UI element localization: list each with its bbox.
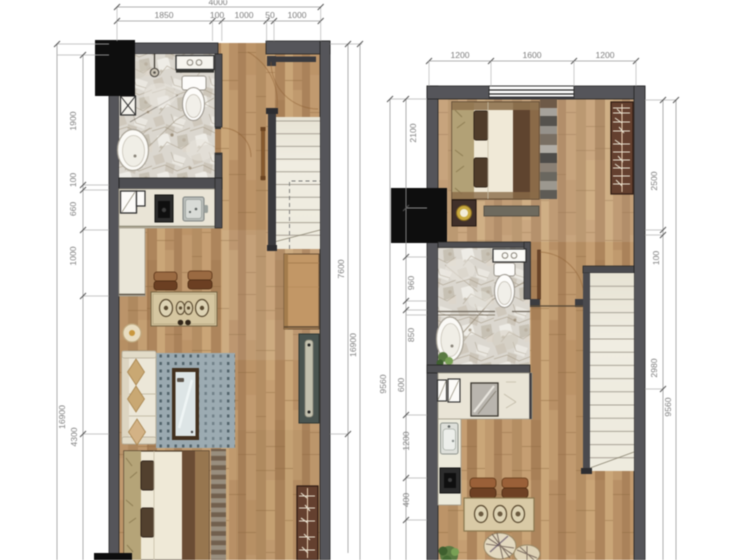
svg-text:50: 50 <box>265 10 275 20</box>
svg-text:600: 600 <box>396 378 406 393</box>
svg-text:1200: 1200 <box>401 431 411 450</box>
svg-text:400: 400 <box>401 493 411 508</box>
svg-text:4300: 4300 <box>69 427 79 446</box>
svg-text:100: 100 <box>651 251 661 266</box>
svg-text:100: 100 <box>210 10 225 20</box>
svg-text:1850: 1850 <box>154 10 173 20</box>
svg-text:960: 960 <box>406 276 416 291</box>
svg-text:1000: 1000 <box>287 10 306 20</box>
svg-text:100: 100 <box>68 173 78 188</box>
svg-text:1200: 1200 <box>595 50 614 60</box>
svg-text:16900: 16900 <box>348 333 358 357</box>
svg-text:850: 850 <box>406 328 416 343</box>
svg-text:16900: 16900 <box>57 405 67 429</box>
svg-text:9560: 9560 <box>663 397 673 416</box>
svg-text:1000: 1000 <box>234 10 253 20</box>
svg-text:7600: 7600 <box>336 259 346 278</box>
svg-text:1900: 1900 <box>68 111 78 130</box>
svg-text:1600: 1600 <box>522 50 541 60</box>
svg-text:4000: 4000 <box>208 0 227 7</box>
svg-text:2500: 2500 <box>649 171 659 190</box>
svg-text:1200: 1200 <box>450 50 469 60</box>
svg-text:660: 660 <box>68 202 78 217</box>
svg-text:9560: 9560 <box>378 374 388 393</box>
svg-text:2980: 2980 <box>649 358 659 377</box>
svg-text:2100: 2100 <box>408 123 418 142</box>
svg-text:1000: 1000 <box>68 246 78 265</box>
